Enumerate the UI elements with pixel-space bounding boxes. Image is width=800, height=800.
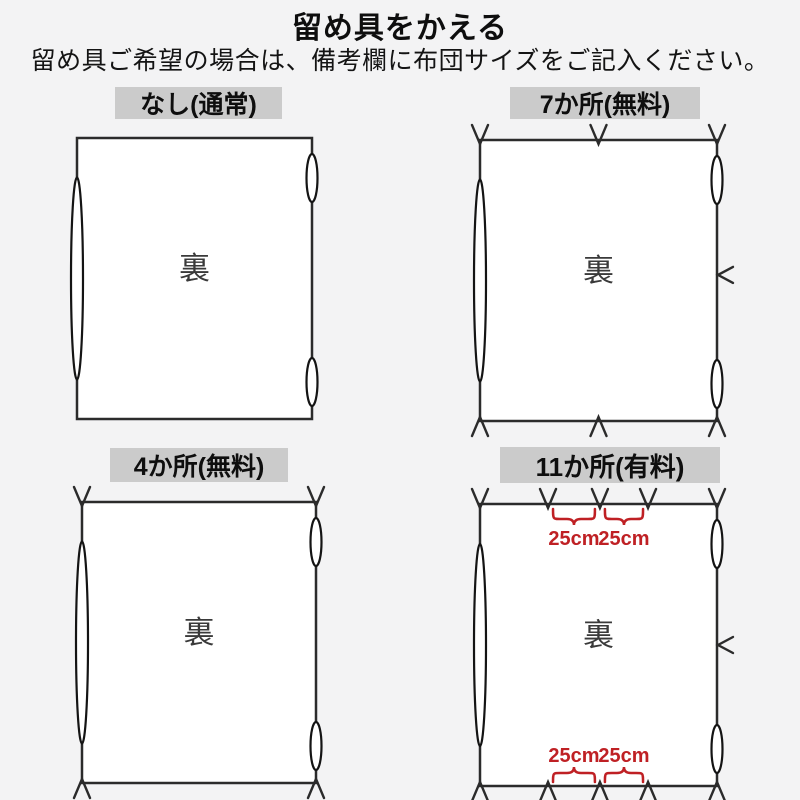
panel-label-none: なし(通常): [115, 87, 282, 119]
dimension-label: 25cm: [598, 745, 649, 767]
duvet-loop-icon: [474, 180, 486, 382]
back-side-label: 裏: [179, 251, 210, 286]
back-side-label: 裏: [583, 618, 614, 653]
duvet-loop-icon: [712, 156, 723, 204]
fastener-options-page: { "page": { "title": "留め具をかえる", "subtitl…: [0, 0, 800, 800]
duvet-loop-icon: [311, 518, 322, 566]
fastener-mark-icon: [718, 637, 733, 653]
panel-label-four: 4か所(無料): [110, 448, 288, 482]
duvet-loop-icon: [474, 544, 486, 746]
dimension-label: 25cm: [548, 745, 599, 767]
duvet-diagram-four: 裏: [74, 487, 324, 798]
duvet-loop-icon: [307, 154, 318, 202]
duvet-loop-icon: [712, 520, 723, 568]
duvet-diagram-eleven: 25cm25cm25cm25cm裏: [472, 489, 733, 800]
duvet-loop-icon: [307, 358, 318, 406]
duvet-diagram-none: 裏: [71, 138, 318, 419]
panel-label-seven: 7か所(無料): [510, 87, 700, 119]
fastener-mark-icon: [718, 267, 733, 283]
dimension-label: 25cm: [598, 528, 649, 550]
back-side-label: 裏: [583, 253, 614, 288]
duvet-loop-icon: [311, 722, 322, 770]
duvet-diagram-seven: 裏: [472, 125, 733, 436]
duvet-loop-icon: [76, 542, 88, 744]
duvet-loop-icon: [71, 178, 83, 380]
panel-label-eleven: 11か所(有料): [500, 447, 720, 483]
back-side-label: 裏: [184, 615, 215, 650]
duvet-loop-icon: [712, 360, 723, 408]
duvet-loop-icon: [712, 725, 723, 773]
dimension-label: 25cm: [548, 528, 599, 550]
duvet-diagrams-canvas: 裏裏裏25cm25cm25cm25cm裏: [0, 0, 800, 800]
